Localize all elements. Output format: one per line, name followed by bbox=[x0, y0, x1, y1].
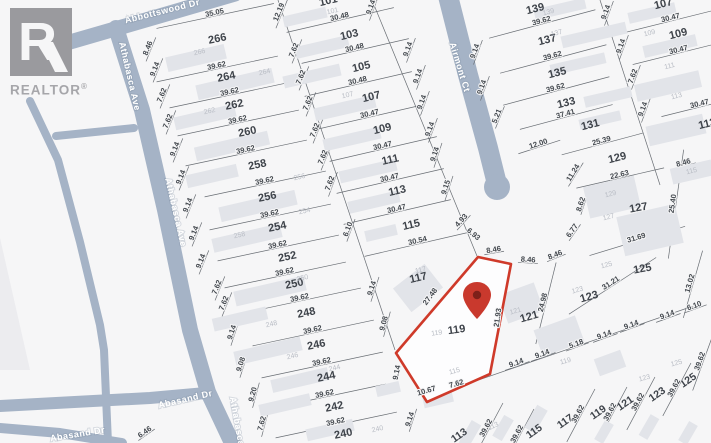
dimension-label: 9.14 bbox=[187, 224, 201, 242]
realtor-wordmark: REALTOR® bbox=[10, 82, 120, 98]
open-area bbox=[0, 238, 30, 370]
building-address-label: 256 bbox=[293, 173, 306, 182]
dimension-label: 9.14 bbox=[168, 140, 182, 158]
dimension-label: 9.14 bbox=[614, 37, 628, 55]
dimension-label: 39.62 bbox=[254, 174, 274, 187]
dimension-label: 7.62 bbox=[161, 113, 175, 130]
dimension-label: 30.48 bbox=[347, 74, 368, 87]
lot-number-label: 111 bbox=[381, 152, 400, 168]
dimension-label: 8.46 bbox=[520, 255, 535, 265]
lot-number-label: 254 bbox=[267, 219, 288, 235]
building-footprint bbox=[185, 164, 239, 188]
lot-number-label: 107 bbox=[361, 89, 382, 105]
building-footprint bbox=[375, 381, 401, 397]
dimension-label: 21.93 bbox=[492, 308, 504, 328]
lot-number-label: 125 bbox=[678, 371, 699, 391]
dimension-label: 8.46 bbox=[141, 40, 155, 57]
building-address-label: 109 bbox=[643, 29, 656, 39]
building-footprint bbox=[634, 70, 702, 101]
dimension-label: 9.14 bbox=[599, 3, 613, 21]
lot-number-label: 240 bbox=[333, 426, 353, 442]
airmont-cul-de-sac bbox=[484, 174, 510, 200]
lot-number-label: 262 bbox=[224, 97, 244, 113]
dimension-label: 7.62 bbox=[255, 415, 268, 432]
dimension-label: 30.54 bbox=[407, 234, 428, 247]
dimension-label: 39.62 bbox=[314, 387, 334, 400]
dimension-label: 6.93 bbox=[465, 226, 482, 242]
realtor-logo-r: R bbox=[10, 8, 72, 76]
plat-map-view: Abbottswood DrAthabasca AveAthabasca Ave… bbox=[0, 0, 711, 443]
dimension-label: 9.14 bbox=[423, 120, 437, 138]
dimension-label: 7.62 bbox=[626, 68, 640, 85]
dimension-label: 31.21 bbox=[600, 274, 621, 292]
building-address-label: 125 bbox=[670, 359, 683, 369]
lot-number-label: 103 bbox=[339, 27, 360, 43]
street-lane bbox=[30, 101, 108, 443]
building-address-label: 127 bbox=[602, 213, 615, 223]
dimension-label: 39.62 bbox=[274, 265, 294, 278]
building-footprint bbox=[639, 414, 660, 440]
dimension-label: 7.62 bbox=[155, 87, 169, 104]
dimension-label: 5.21 bbox=[490, 107, 504, 125]
dimension-label: 7.62 bbox=[323, 175, 337, 192]
dimension-label: 9.14 bbox=[148, 60, 162, 78]
dimension-label: 9.14 bbox=[428, 145, 441, 163]
building-address-label: 123 bbox=[638, 374, 651, 384]
building-address-label: 244 bbox=[328, 364, 341, 373]
dimension-label: 8.46 bbox=[547, 248, 564, 262]
lot-number-label: 125 bbox=[632, 262, 652, 277]
dimension-label: 39.62 bbox=[601, 401, 618, 422]
building-footprint bbox=[364, 224, 398, 242]
dimension-label: 6.77 bbox=[564, 222, 580, 239]
dimension-label: 4.93 bbox=[453, 212, 470, 229]
dimension-label: 9.14 bbox=[364, 0, 378, 16]
dimension-label: 9.14 bbox=[596, 328, 614, 342]
building-address-label: 107 bbox=[341, 91, 354, 100]
building-footprint bbox=[194, 131, 270, 162]
realtor-wordmark-text: REALTOR bbox=[10, 83, 81, 98]
building-footprint bbox=[282, 64, 341, 89]
dimension-label: 8.46 bbox=[486, 244, 502, 255]
dimension-label: 6.10 bbox=[341, 221, 355, 238]
dimension-label: 9.14 bbox=[415, 93, 429, 111]
building-footprint bbox=[583, 86, 632, 108]
lot-number-label: 246 bbox=[306, 337, 326, 353]
lot-number-label: 242 bbox=[324, 399, 344, 415]
registered-symbol: ® bbox=[81, 82, 88, 91]
dimension-label: 7.62 bbox=[316, 149, 330, 166]
dimension-label: 9.14 bbox=[659, 308, 677, 322]
building-address-label: 240 bbox=[371, 425, 384, 434]
dimension-label: 25.40 bbox=[667, 194, 679, 214]
dimension-label: 7.62 bbox=[217, 295, 231, 312]
dimension-label: 39.62 bbox=[692, 351, 707, 372]
lot-number-label: 252 bbox=[277, 249, 297, 265]
building-address-label: 246 bbox=[286, 352, 299, 361]
dimension-label: 9.14 bbox=[181, 196, 195, 214]
lot-number-label: 129 bbox=[607, 150, 628, 166]
realtor-logo-block: R bbox=[10, 8, 72, 76]
building-address-label: 119 bbox=[559, 357, 572, 367]
dimension-label: 39.62 bbox=[267, 238, 287, 251]
dimension-label: 9.20 bbox=[246, 386, 259, 403]
building-address-label: 254 bbox=[298, 207, 311, 216]
realtor-logo: R REALTOR® bbox=[10, 8, 120, 100]
building-address-label: 125 bbox=[600, 261, 613, 271]
dimension-label: 7.62 bbox=[308, 122, 322, 139]
dimension-label: 7.62 bbox=[210, 279, 224, 296]
lot-number-label: 113 bbox=[387, 183, 407, 199]
dimension-label: 9.14 bbox=[401, 40, 415, 58]
dimension-label: 9.14 bbox=[194, 252, 208, 270]
building-address-label: 113 bbox=[670, 92, 683, 102]
dimension-label: 8.62 bbox=[574, 196, 587, 213]
dimension-label: 9.15 bbox=[439, 178, 452, 196]
dimension-label: 9.14 bbox=[508, 356, 526, 370]
lot-number-label: 105 bbox=[351, 59, 372, 75]
lot-number-label: 109 bbox=[372, 121, 393, 137]
building-footprint bbox=[645, 114, 706, 147]
dimension-label: 39.62 bbox=[629, 391, 646, 412]
dimension-label: 11.24 bbox=[564, 162, 582, 183]
building-address-label: 111 bbox=[664, 62, 676, 71]
building-footprint bbox=[258, 393, 311, 416]
lot-number-label: 266 bbox=[207, 31, 227, 47]
building-address-label: 248 bbox=[265, 320, 278, 329]
lot-number-label: 248 bbox=[296, 305, 316, 321]
dimension-label: 30.47 bbox=[689, 97, 710, 110]
dimension-label: 39.62 bbox=[542, 49, 563, 63]
dimension-label: 13.02 bbox=[683, 273, 697, 294]
dimension-label: 39.62 bbox=[302, 323, 322, 336]
dimension-label: 9.14 bbox=[411, 67, 425, 85]
building-footprint bbox=[678, 421, 698, 443]
dimension-label: 9.14 bbox=[636, 100, 650, 118]
building-address-label: 250 bbox=[296, 274, 309, 283]
building-footprint bbox=[594, 350, 626, 376]
dimension-label: 9.14 bbox=[391, 364, 403, 381]
dimension-label: 12.00 bbox=[528, 136, 549, 150]
street-lane-connector bbox=[56, 128, 134, 136]
lot-number-label: 119 bbox=[447, 323, 466, 337]
lot-number-label: 258 bbox=[247, 157, 267, 173]
lot-number-label: 115 bbox=[401, 217, 421, 233]
dimension-label: 9.14 bbox=[403, 410, 416, 428]
dimension-label: 39.62 bbox=[665, 377, 682, 398]
dimension-label: 39.62 bbox=[531, 14, 552, 28]
dimension-label: 9.14 bbox=[623, 318, 641, 332]
dimension-label: 25.39 bbox=[591, 134, 612, 148]
dimension-label: 39.62 bbox=[508, 423, 525, 443]
dimension-label: 39.62 bbox=[569, 403, 586, 424]
dimension-label: 30.47 bbox=[372, 139, 393, 152]
building-footprint bbox=[594, 420, 614, 443]
dimension-label: 39.62 bbox=[545, 81, 566, 95]
lot-number-label: 135 bbox=[547, 65, 568, 81]
map-pin-dot bbox=[473, 291, 481, 299]
dimension-label: 6.46 bbox=[136, 424, 153, 440]
